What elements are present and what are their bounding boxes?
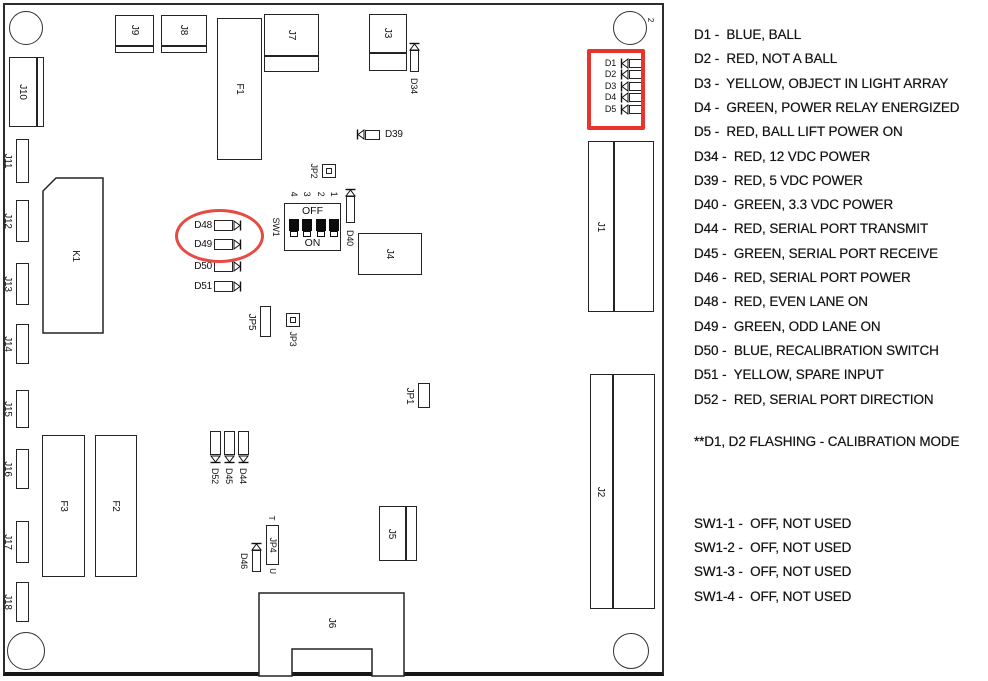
connector-JP1 xyxy=(418,383,430,408)
connector-J16 xyxy=(16,449,29,489)
connector-J11 xyxy=(16,139,29,183)
legend-note: **D1, D2 FLASHING - CALIBRATION MODE xyxy=(694,434,959,449)
legend-led-line-9: D45 - GREEN, SERIAL PORT RECEIVE xyxy=(694,246,938,261)
legend-sw-line-2: SW1-3 - OFF, NOT USED xyxy=(694,564,851,579)
connector-J1-divider xyxy=(613,141,615,312)
led-label-D39: D39 xyxy=(385,129,421,140)
connector-label-J6: J6 xyxy=(323,583,341,663)
connector-label-J5: J5 xyxy=(383,494,401,574)
legend-led-line-1: D2 - RED, NOT A BALL xyxy=(694,51,837,66)
legend-led-line-14: D51 - YELLOW, SPARE INPUT xyxy=(694,367,884,382)
led-label-D40: D40 xyxy=(341,198,359,278)
legend-led-line-15: D52 - RED, SERIAL PORT DIRECTION xyxy=(694,392,934,407)
connector-label-J18: J18 xyxy=(0,562,17,642)
highlight-box xyxy=(587,49,645,130)
pcb-led-reference-diagram: J10J9J8J7J3F1J4F3F2J5J1J2J11J12J13J14J15… xyxy=(0,0,988,681)
dip-switch-label: SW1 xyxy=(267,187,285,267)
connector-label-F2: F2 xyxy=(107,466,125,546)
legend-led-line-4: D5 - RED, BALL LIFT POWER ON xyxy=(694,124,903,139)
jumper-label-JP3: JP3 xyxy=(284,299,302,379)
led-D50-diode-icon xyxy=(233,261,242,272)
led-label-D46: D46 xyxy=(235,521,253,601)
connector-J5-divider xyxy=(405,506,407,561)
led-D46-body xyxy=(252,550,261,572)
connector-label-J8: J8 xyxy=(175,0,193,70)
led-label-D50: D50 xyxy=(188,261,212,272)
connector-label-J10: J10 xyxy=(14,52,32,132)
led-label-D51: D51 xyxy=(188,281,212,292)
legend-sw-line-1: SW1-2 - OFF, NOT USED xyxy=(694,540,851,555)
connector-label-J16: J16 xyxy=(0,429,17,509)
connector-J13 xyxy=(16,263,29,305)
legend-sw-line-0: SW1-1 - OFF, NOT USED xyxy=(694,516,851,531)
led-D39-body xyxy=(365,130,380,140)
connector-label-J3: J3 xyxy=(379,0,397,73)
corner-mark: 2 xyxy=(642,0,660,60)
connector-label-J7: J7 xyxy=(283,0,301,75)
legend-led-line-12: D49 - GREEN, ODD LANE ON xyxy=(694,319,881,334)
connector-JP5 xyxy=(260,306,271,337)
legend-sw-line-3: SW1-4 - OFF, NOT USED xyxy=(694,589,851,604)
legend-led-line-8: D44 - RED, SERIAL PORT TRANSMIT xyxy=(694,221,928,236)
connector-label-JP1: JP1 xyxy=(401,356,419,436)
relay-label-K1: K1 xyxy=(67,216,85,296)
legend-led-line-13: D50 - BLUE, RECALIBRATION SWITCH xyxy=(694,343,939,358)
connector-label-J2: J2 xyxy=(592,452,610,532)
connector-J15 xyxy=(16,390,29,428)
legend-led-line-10: D46 - RED, SERIAL PORT POWER xyxy=(694,270,911,285)
dip-on-label: ON xyxy=(284,237,341,249)
led-label-D52: D52 xyxy=(206,436,224,516)
led-D51-diode-icon xyxy=(233,281,242,292)
highlight-ellipse xyxy=(175,209,264,263)
connector-J10-divider xyxy=(36,57,38,127)
led-D39-diode-icon xyxy=(356,129,365,140)
led-D51-body xyxy=(214,281,233,292)
connector-label-F1: F1 xyxy=(231,49,249,129)
connector-J12 xyxy=(16,200,29,242)
legend-led-line-5: D34 - RED, 12 VDC POWER xyxy=(694,149,870,164)
legend-led-line-0: D1 - BLUE, BALL xyxy=(694,27,801,42)
connector-J2-divider xyxy=(612,374,614,609)
led-D40-diode-icon xyxy=(345,188,356,197)
legend-led-line-11: D48 - RED, EVEN LANE ON xyxy=(694,294,868,309)
connector-J17 xyxy=(16,521,29,563)
connector-label-J1: J1 xyxy=(592,187,610,267)
connector-J18 xyxy=(16,582,29,622)
connector-label-J4: J4 xyxy=(381,214,399,294)
legend-led-line-3: D4 - GREEN, POWER RELAY ENERGIZED xyxy=(694,100,959,115)
connector-J14 xyxy=(16,324,29,364)
connector-label-J9: J9 xyxy=(126,0,144,70)
legend-led-line-6: D39 - RED, 5 VDC POWER xyxy=(694,173,863,188)
led-label-D34: D34 xyxy=(405,46,423,126)
mounting-hole-3 xyxy=(613,633,649,669)
mounting-hole-0 xyxy=(9,11,43,45)
connector-label-F3: F3 xyxy=(55,466,73,546)
dip-position-number-1: 1 xyxy=(325,154,343,234)
legend-led-line-2: D3 - YELLOW, OBJECT IN LIGHT ARRAY xyxy=(694,76,948,91)
connector-label-JP5: JP5 xyxy=(243,282,261,362)
legend-led-line-7: D40 - GREEN, 3.3 VDC POWER xyxy=(694,197,893,212)
